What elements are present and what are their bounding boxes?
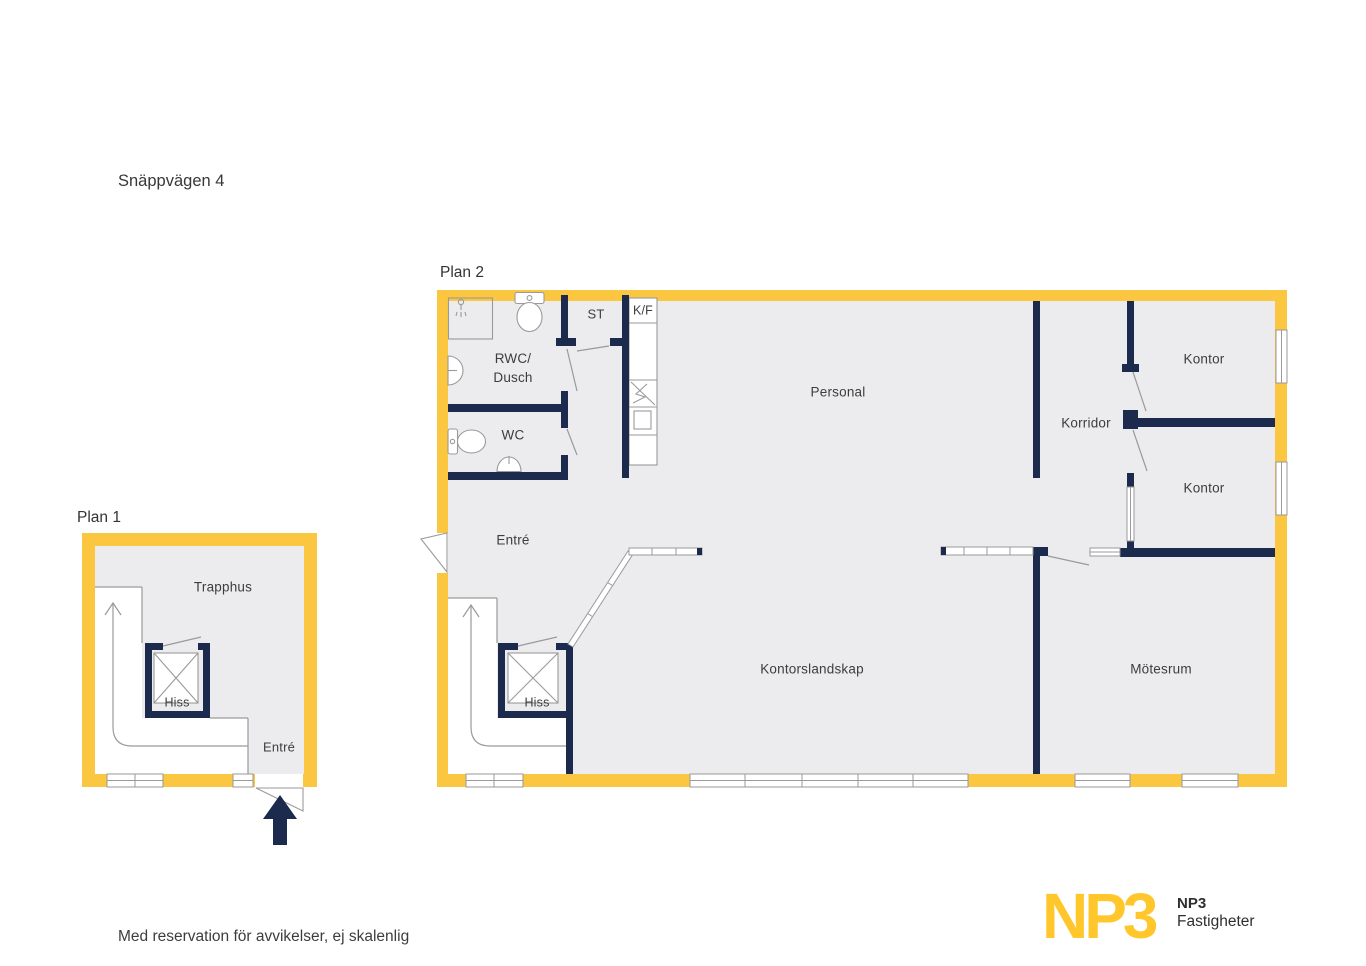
room-label-kf: K/F [633, 302, 653, 321]
room-label-entre-plan2: Entré [496, 531, 529, 550]
disclaimer-text: Med reservation för avvikelser, ej skale… [118, 928, 409, 946]
room-label-trapphus: Trapphus [194, 578, 252, 597]
room-label-st: ST [587, 305, 604, 324]
floorplan-drawing [0, 0, 1366, 966]
room-label-rwc-dusch: RWC/ Dusch [493, 349, 532, 387]
room-label-kontor-2: Kontor [1184, 479, 1225, 498]
plan2-label: Plan 2 [440, 264, 484, 282]
kitchen-sink-icon [634, 411, 651, 429]
room-label-entre-plan1: Entré [263, 738, 295, 757]
plan2-floorplan [421, 290, 1287, 787]
room-label-hiss-plan2: Hiss [524, 694, 549, 713]
toilet-icon [448, 429, 486, 454]
toilet-icon [515, 293, 544, 332]
room-label-personal: Personal [811, 383, 866, 402]
room-label-korridor: Korridor [1061, 414, 1111, 433]
room-label-kontor-1: Kontor [1184, 350, 1225, 369]
np3-logo-wordmark: NP3 [1042, 884, 1155, 948]
plan1-label: Plan 1 [77, 509, 121, 527]
kitchen-counter [629, 298, 657, 465]
page-title: Snäppvägen 4 [118, 172, 224, 191]
room-label-motesrum: Mötesrum [1130, 660, 1192, 679]
plan1-floorplan [82, 533, 317, 811]
floorplan-page: Snäppvägen 4 Plan 2 Plan 1 RWC/ Dusch ST… [0, 0, 1366, 966]
room-label-kontorslandskap: Kontorslandskap [760, 660, 864, 679]
np3-logo-subtitle: Fastigheter [1177, 914, 1255, 930]
room-label-wc: WC [502, 426, 525, 445]
plan2-entrance-door [421, 533, 448, 573]
np3-logo-name: NP3 [1177, 896, 1206, 911]
room-label-hiss-plan1: Hiss [164, 694, 189, 713]
